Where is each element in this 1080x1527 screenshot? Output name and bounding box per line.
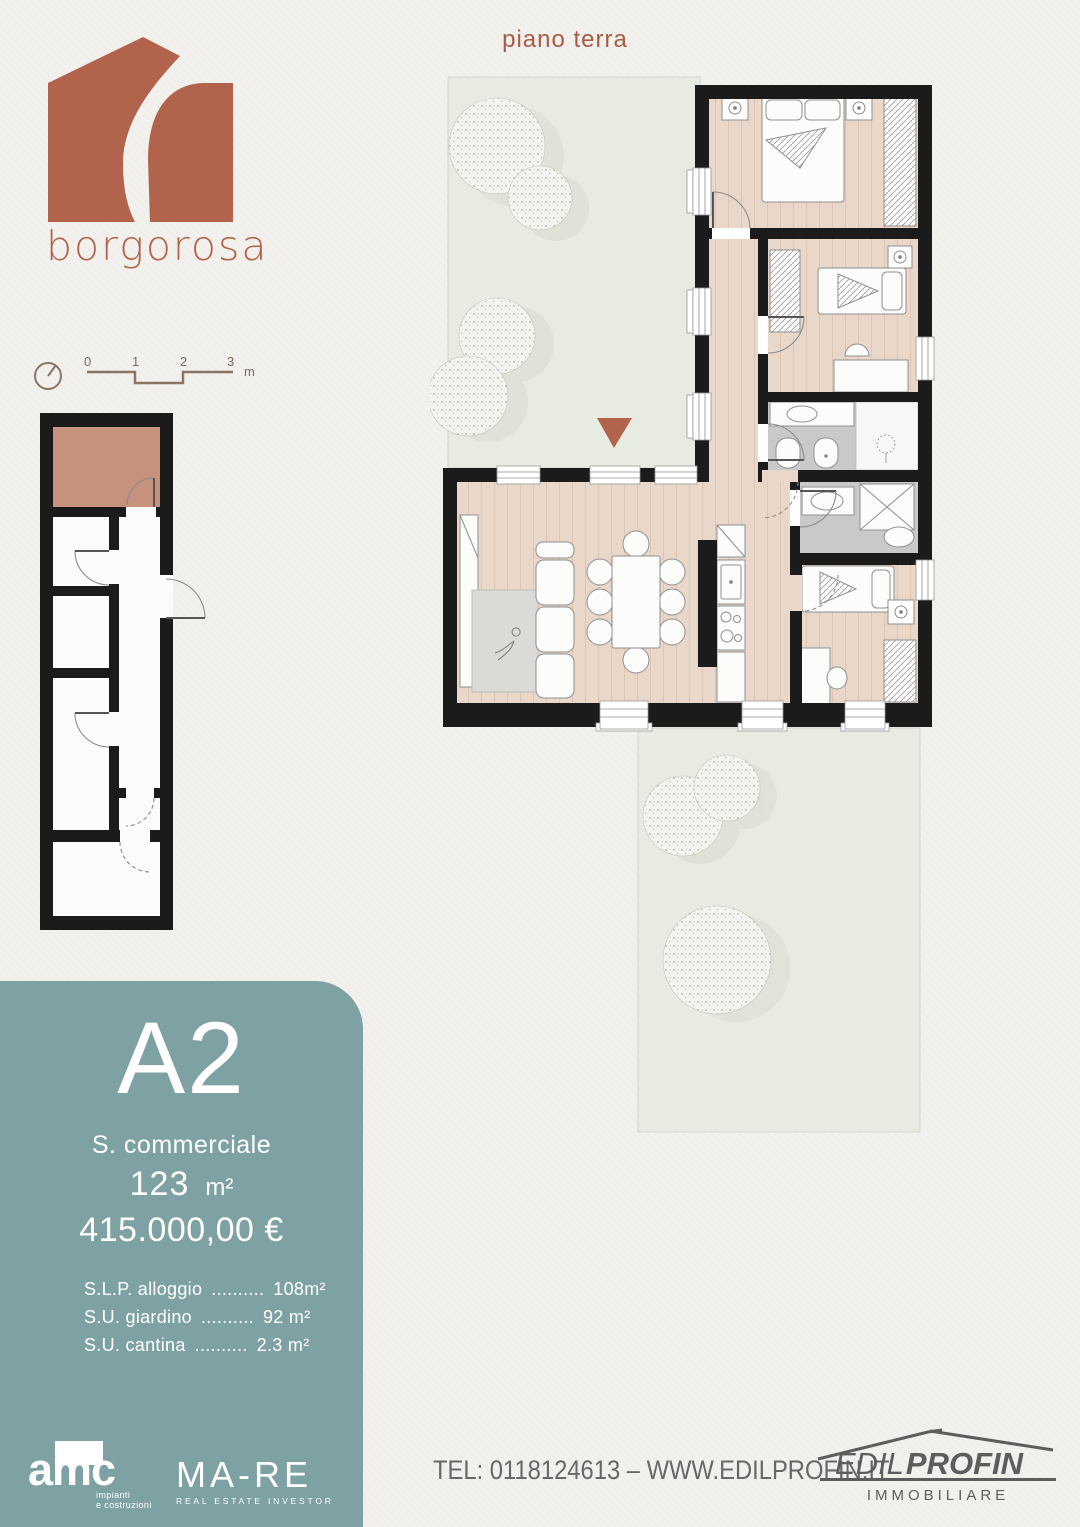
chair <box>827 667 847 689</box>
spec-row-cantina: S.U. cantina .......... 2.3 m² <box>84 1331 326 1359</box>
window <box>687 288 711 335</box>
scale-bar: 0 1 2 3 m <box>28 348 263 398</box>
window <box>841 701 889 731</box>
area-value: 123 <box>130 1165 190 1203</box>
logo-underline <box>820 1478 1056 1481</box>
spec-label: S.L.P. alloggio <box>84 1275 202 1303</box>
spec-dots: .......... <box>211 1275 264 1303</box>
tick-2: 2 <box>180 354 187 369</box>
window <box>916 560 935 600</box>
toilet <box>776 438 800 468</box>
unit-code: A2 <box>0 1007 363 1109</box>
area-line: 123m² <box>0 1165 363 1204</box>
window <box>596 701 652 731</box>
borgorosa-logo-mark <box>45 35 285 230</box>
sofa <box>536 542 574 698</box>
unit-label: m <box>244 364 255 379</box>
spec-value: 108m² <box>273 1275 326 1303</box>
wardrobe <box>884 96 916 226</box>
scale-ticks: 0 1 2 3 m <box>84 354 255 379</box>
edilprofin-logo: EDILPROFIN IMMOBILIARE <box>812 1424 1064 1510</box>
logo-shape <box>48 37 233 222</box>
compass-icon <box>35 363 61 389</box>
garden-top <box>430 77 700 468</box>
immobiliare-label: IMMOBILIARE <box>867 1487 1009 1504</box>
wardrobe <box>884 640 916 702</box>
desk <box>834 360 908 392</box>
floor-plan <box>430 55 935 1160</box>
cantina-room-highlight <box>53 427 160 507</box>
spec-value: 92 m² <box>263 1303 311 1331</box>
spec-row-slp: S.L.P. alloggio .......... 108m² <box>84 1275 326 1303</box>
window <box>916 337 935 380</box>
window <box>497 466 540 484</box>
cellar-plan <box>36 408 221 938</box>
desk <box>800 648 830 710</box>
spec-list: S.L.P. alloggio .......... 108m² S.U. gi… <box>84 1275 326 1359</box>
mare-subtitle: REAL ESTATE INVESTOR <box>176 1496 346 1506</box>
tick-1: 1 <box>132 354 139 369</box>
toilet <box>884 527 914 547</box>
tick-0: 0 <box>84 354 91 369</box>
plan-title: piano terra <box>430 26 700 54</box>
spec-dots: .......... <box>195 1331 248 1359</box>
mare-logo: MA-RE REAL ESTATE INVESTOR <box>176 1457 346 1506</box>
mare-name: MA-RE <box>176 1457 346 1493</box>
price: 415.000,00 € <box>0 1211 363 1250</box>
amc-logo: amc impianti e costruzioni <box>28 1438 158 1508</box>
edil-part: EDIL <box>835 1446 904 1481</box>
spec-dots: .......... <box>201 1303 254 1331</box>
brand-name: borgorosa <box>46 222 286 270</box>
entry-door-window <box>590 466 640 484</box>
amc-subtitle-2: e costruzioni <box>96 1500 152 1510</box>
window <box>687 393 711 440</box>
tick-3: 3 <box>227 354 234 369</box>
garden-bottom <box>638 728 920 1132</box>
spec-row-giardino: S.U. giardino .......... 92 m² <box>84 1303 326 1331</box>
edilprofin-wordmark: EDILPROFIN <box>835 1446 1024 1481</box>
cooktop <box>717 606 745 650</box>
window <box>738 701 787 731</box>
scale-bar-line <box>87 372 233 383</box>
dining-table <box>612 556 660 648</box>
spec-label: S.U. giardino <box>84 1303 192 1331</box>
spec-value: 2.3 m² <box>257 1331 310 1359</box>
window <box>655 466 697 484</box>
area-unit: m² <box>205 1174 233 1201</box>
area-label: S. commerciale <box>0 1131 363 1160</box>
profin-part: PROFIN <box>906 1446 1024 1481</box>
bidet <box>814 438 838 468</box>
spec-label: S.U. cantina <box>84 1331 186 1359</box>
rug <box>472 590 538 692</box>
amc-name: amc <box>28 1447 115 1492</box>
window <box>687 168 711 215</box>
kitchen <box>717 525 745 702</box>
amc-subtitle-1: impianti <box>96 1490 130 1500</box>
